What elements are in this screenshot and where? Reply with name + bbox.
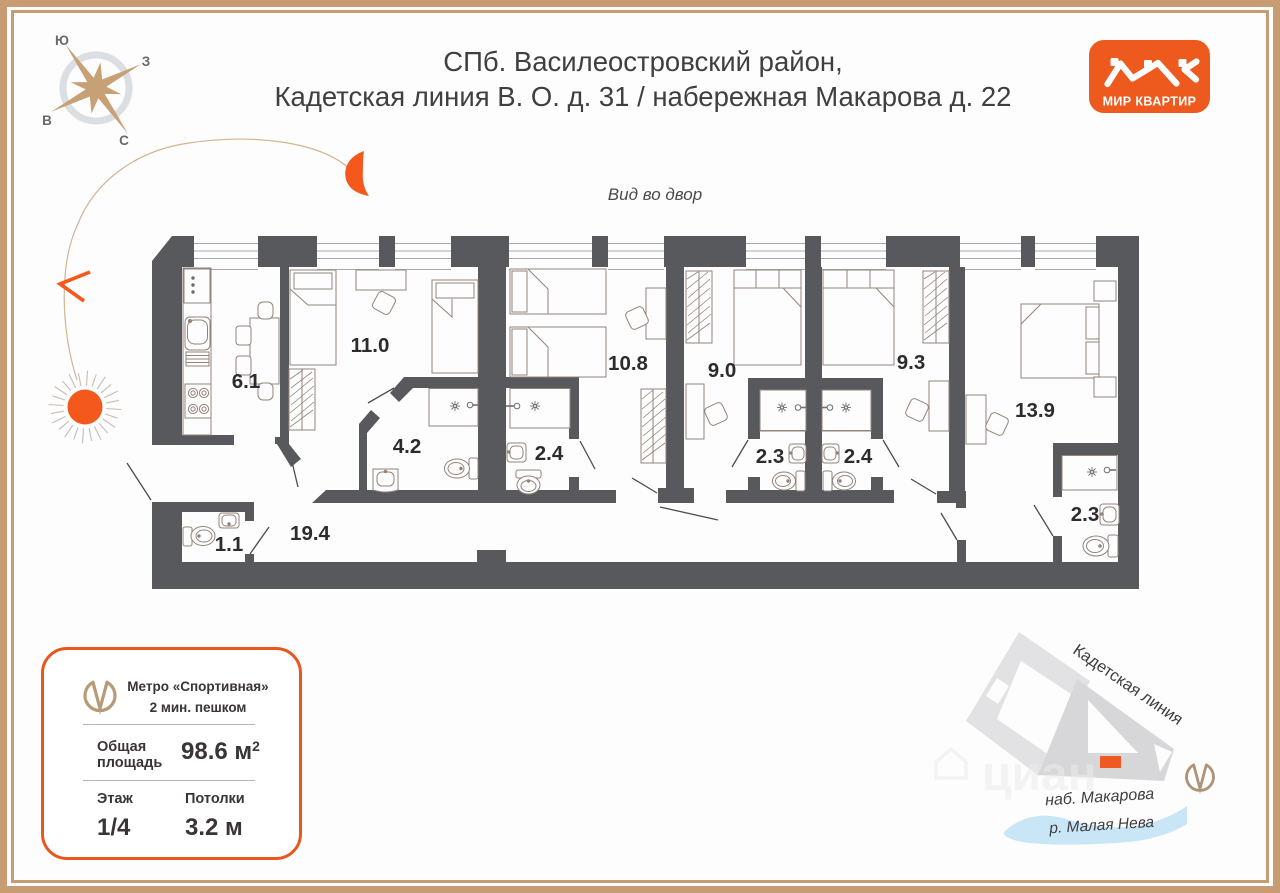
svg-text:11.0: 11.0 bbox=[351, 334, 390, 357]
svg-text:9.3: 9.3 bbox=[897, 351, 926, 374]
svg-text:10.8: 10.8 bbox=[608, 352, 648, 375]
svg-text:13.9: 13.9 bbox=[1015, 399, 1055, 422]
svg-text:9.0: 9.0 bbox=[708, 359, 737, 382]
svg-text:19.4: 19.4 bbox=[290, 522, 330, 545]
svg-text:З: З bbox=[142, 54, 150, 69]
svg-text:2.3: 2.3 bbox=[1071, 503, 1100, 526]
svg-text:4.2: 4.2 bbox=[393, 435, 422, 458]
svg-text:1.1: 1.1 bbox=[215, 533, 244, 556]
svg-text:С: С bbox=[119, 133, 129, 148]
svg-text:2.4: 2.4 bbox=[535, 442, 564, 465]
svg-text:В: В bbox=[42, 113, 52, 128]
svg-text:2.3: 2.3 bbox=[756, 445, 785, 468]
svg-text:6.1: 6.1 bbox=[232, 370, 261, 393]
svg-text:2.4: 2.4 bbox=[844, 445, 873, 468]
svg-text:Ю: Ю bbox=[55, 33, 69, 48]
